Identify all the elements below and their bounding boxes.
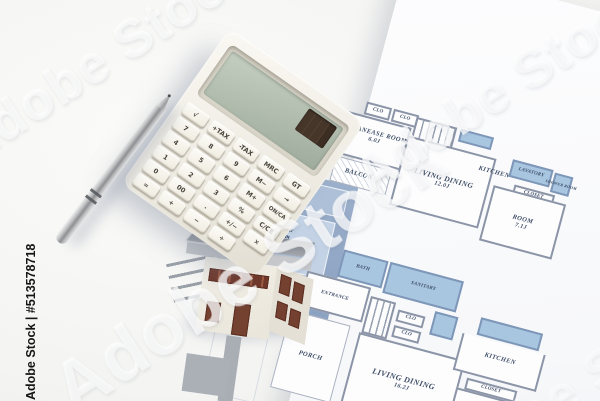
room-wc-1f bbox=[429, 311, 458, 340]
stock-id-watermark: Adobe Stock | #513578718 bbox=[24, 244, 38, 400]
house-window bbox=[275, 301, 288, 322]
house-base-block bbox=[182, 353, 231, 397]
house-window bbox=[288, 308, 301, 329]
house-side-wall bbox=[268, 265, 313, 345]
stock-photo-scene: Powder Room Bath CLO CLO JAPANEASE ROOM … bbox=[0, 0, 600, 401]
house-door bbox=[231, 303, 251, 337]
house-window bbox=[205, 301, 222, 323]
house-window bbox=[279, 274, 292, 297]
house-window bbox=[292, 281, 305, 304]
house-front-wall bbox=[195, 256, 279, 340]
pen-point bbox=[167, 94, 171, 98]
